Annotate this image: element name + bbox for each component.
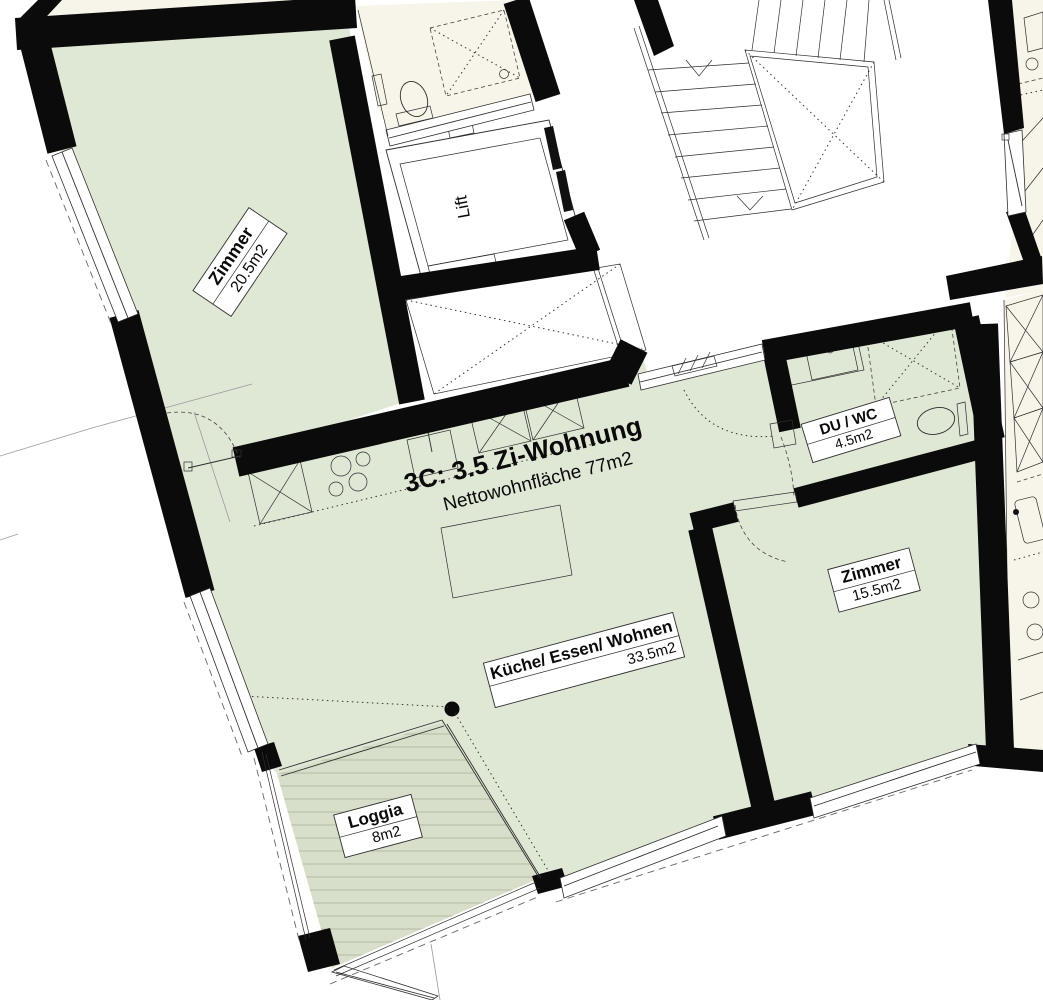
column-dot	[445, 702, 460, 717]
floorplan-drawing: Lift	[0, 0, 1043, 1000]
staircase	[590, 0, 901, 346]
floorplan-page: Lift	[0, 0, 1043, 1000]
neighbor-entry-door	[1004, 130, 1026, 216]
faucet-icon	[1013, 509, 1019, 515]
stair-void	[745, 50, 884, 210]
lift-label: Lift	[451, 194, 474, 220]
stair-arrows	[686, 60, 763, 210]
